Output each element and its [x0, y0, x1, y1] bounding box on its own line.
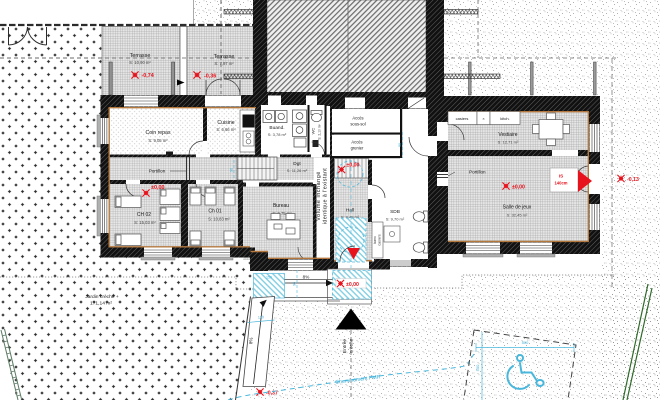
svg-text:±0,00: ±0,00: [347, 163, 360, 169]
svg-text:-0,74: -0,74: [142, 73, 154, 79]
svg-text:Volume inchangé: Volume inchangé: [316, 171, 322, 221]
svg-text:Terrasse: Terrasse: [130, 53, 151, 59]
svg-text:S: 15,03 m²: S: 15,03 m²: [134, 220, 156, 225]
svg-text:S: 9,05 m²: S: 9,05 m²: [148, 138, 168, 143]
svg-text:S: 10,90 m²: S: 10,90 m²: [129, 60, 151, 65]
svg-text:S: 2,10 m²: S: 2,10 m²: [318, 123, 322, 140]
svg-text:Accès: Accès: [351, 140, 362, 145]
svg-text:150: 150: [266, 276, 272, 280]
svg-text:Portillon: Portillon: [149, 169, 166, 174]
svg-text:WC: WC: [311, 128, 316, 135]
svg-text:SDB: SDB: [390, 209, 400, 215]
svg-text:Accès: Accès: [352, 116, 363, 121]
svg-text:identique à l'existant: identique à l'existant: [323, 168, 329, 224]
svg-text:S: 6,66 m²: S: 6,66 m²: [216, 127, 236, 132]
svg-text:sous-sol: sous-sol: [350, 122, 365, 127]
svg-text:crèche: crèche: [349, 338, 355, 353]
svg-text:S: 3,78 m²: S: 3,78 m²: [268, 132, 287, 137]
svg-text:Terrasse: Terrasse: [214, 54, 235, 60]
svg-text:banc: banc: [373, 236, 377, 244]
svg-text:S: 7,97 m²: S: 7,97 m²: [214, 61, 234, 66]
svg-text:kitch.: kitch.: [500, 116, 509, 121]
svg-text:casiers: casiers: [456, 116, 469, 121]
svg-text:casiers: casiers: [378, 234, 382, 246]
svg-text:Ch 01: Ch 01: [208, 209, 222, 215]
svg-text:171,14 m²: 171,14 m²: [90, 301, 112, 307]
svg-text:S: 11,26 m²: S: 11,26 m²: [287, 168, 308, 173]
svg-text:120: 120: [258, 315, 264, 320]
svg-text:90: 90: [293, 282, 297, 286]
svg-text:Salle de jeux: Salle de jeux: [503, 205, 532, 211]
svg-text:140cm: 140cm: [554, 181, 567, 186]
svg-text:90: 90: [230, 168, 234, 172]
svg-text:Portillon: Portillon: [469, 170, 486, 175]
svg-text:S: 12,71 m²: S: 12,71 m²: [498, 140, 519, 145]
svg-text:CH 02: CH 02: [137, 212, 151, 218]
svg-text:grenier: grenier: [351, 146, 364, 151]
svg-text:Hall: Hall: [346, 208, 354, 214]
svg-text:±0,00: ±0,00: [512, 185, 525, 191]
svg-text:90: 90: [398, 143, 402, 147]
svg-text:500: 500: [522, 340, 529, 345]
svg-text:8%: 8%: [248, 337, 254, 344]
svg-text:Cuisine: Cuisine: [217, 120, 234, 126]
svg-text:Jardin crèche +: Jardin crèche +: [85, 294, 119, 300]
svg-text:-0,36: -0,36: [204, 74, 216, 80]
svg-text:Coin repas: Coin repas: [145, 130, 170, 136]
svg-text:S: 32,45 m²: S: 32,45 m²: [507, 213, 528, 218]
svg-text:500: 500: [475, 364, 480, 371]
svg-text:-0,13: -0,13: [627, 177, 639, 183]
svg-text:Entrée: Entrée: [342, 339, 348, 353]
svg-text:S: 10,83 m²: S: 10,83 m²: [208, 217, 230, 222]
svg-text:±0,00: ±0,00: [151, 185, 164, 191]
svg-text:±0,00: ±0,00: [346, 282, 359, 288]
svg-text:S: 9,70 m²: S: 9,70 m²: [386, 217, 405, 222]
svg-text:IS: IS: [559, 174, 563, 179]
svg-text:8%: 8%: [303, 275, 310, 280]
svg-text:Dgt: Dgt: [293, 161, 301, 167]
svg-text:Vestiaire: Vestiaire: [498, 132, 517, 138]
svg-text:Bureau: Bureau: [273, 203, 289, 209]
svg-text:Buand.: Buand.: [269, 125, 284, 131]
